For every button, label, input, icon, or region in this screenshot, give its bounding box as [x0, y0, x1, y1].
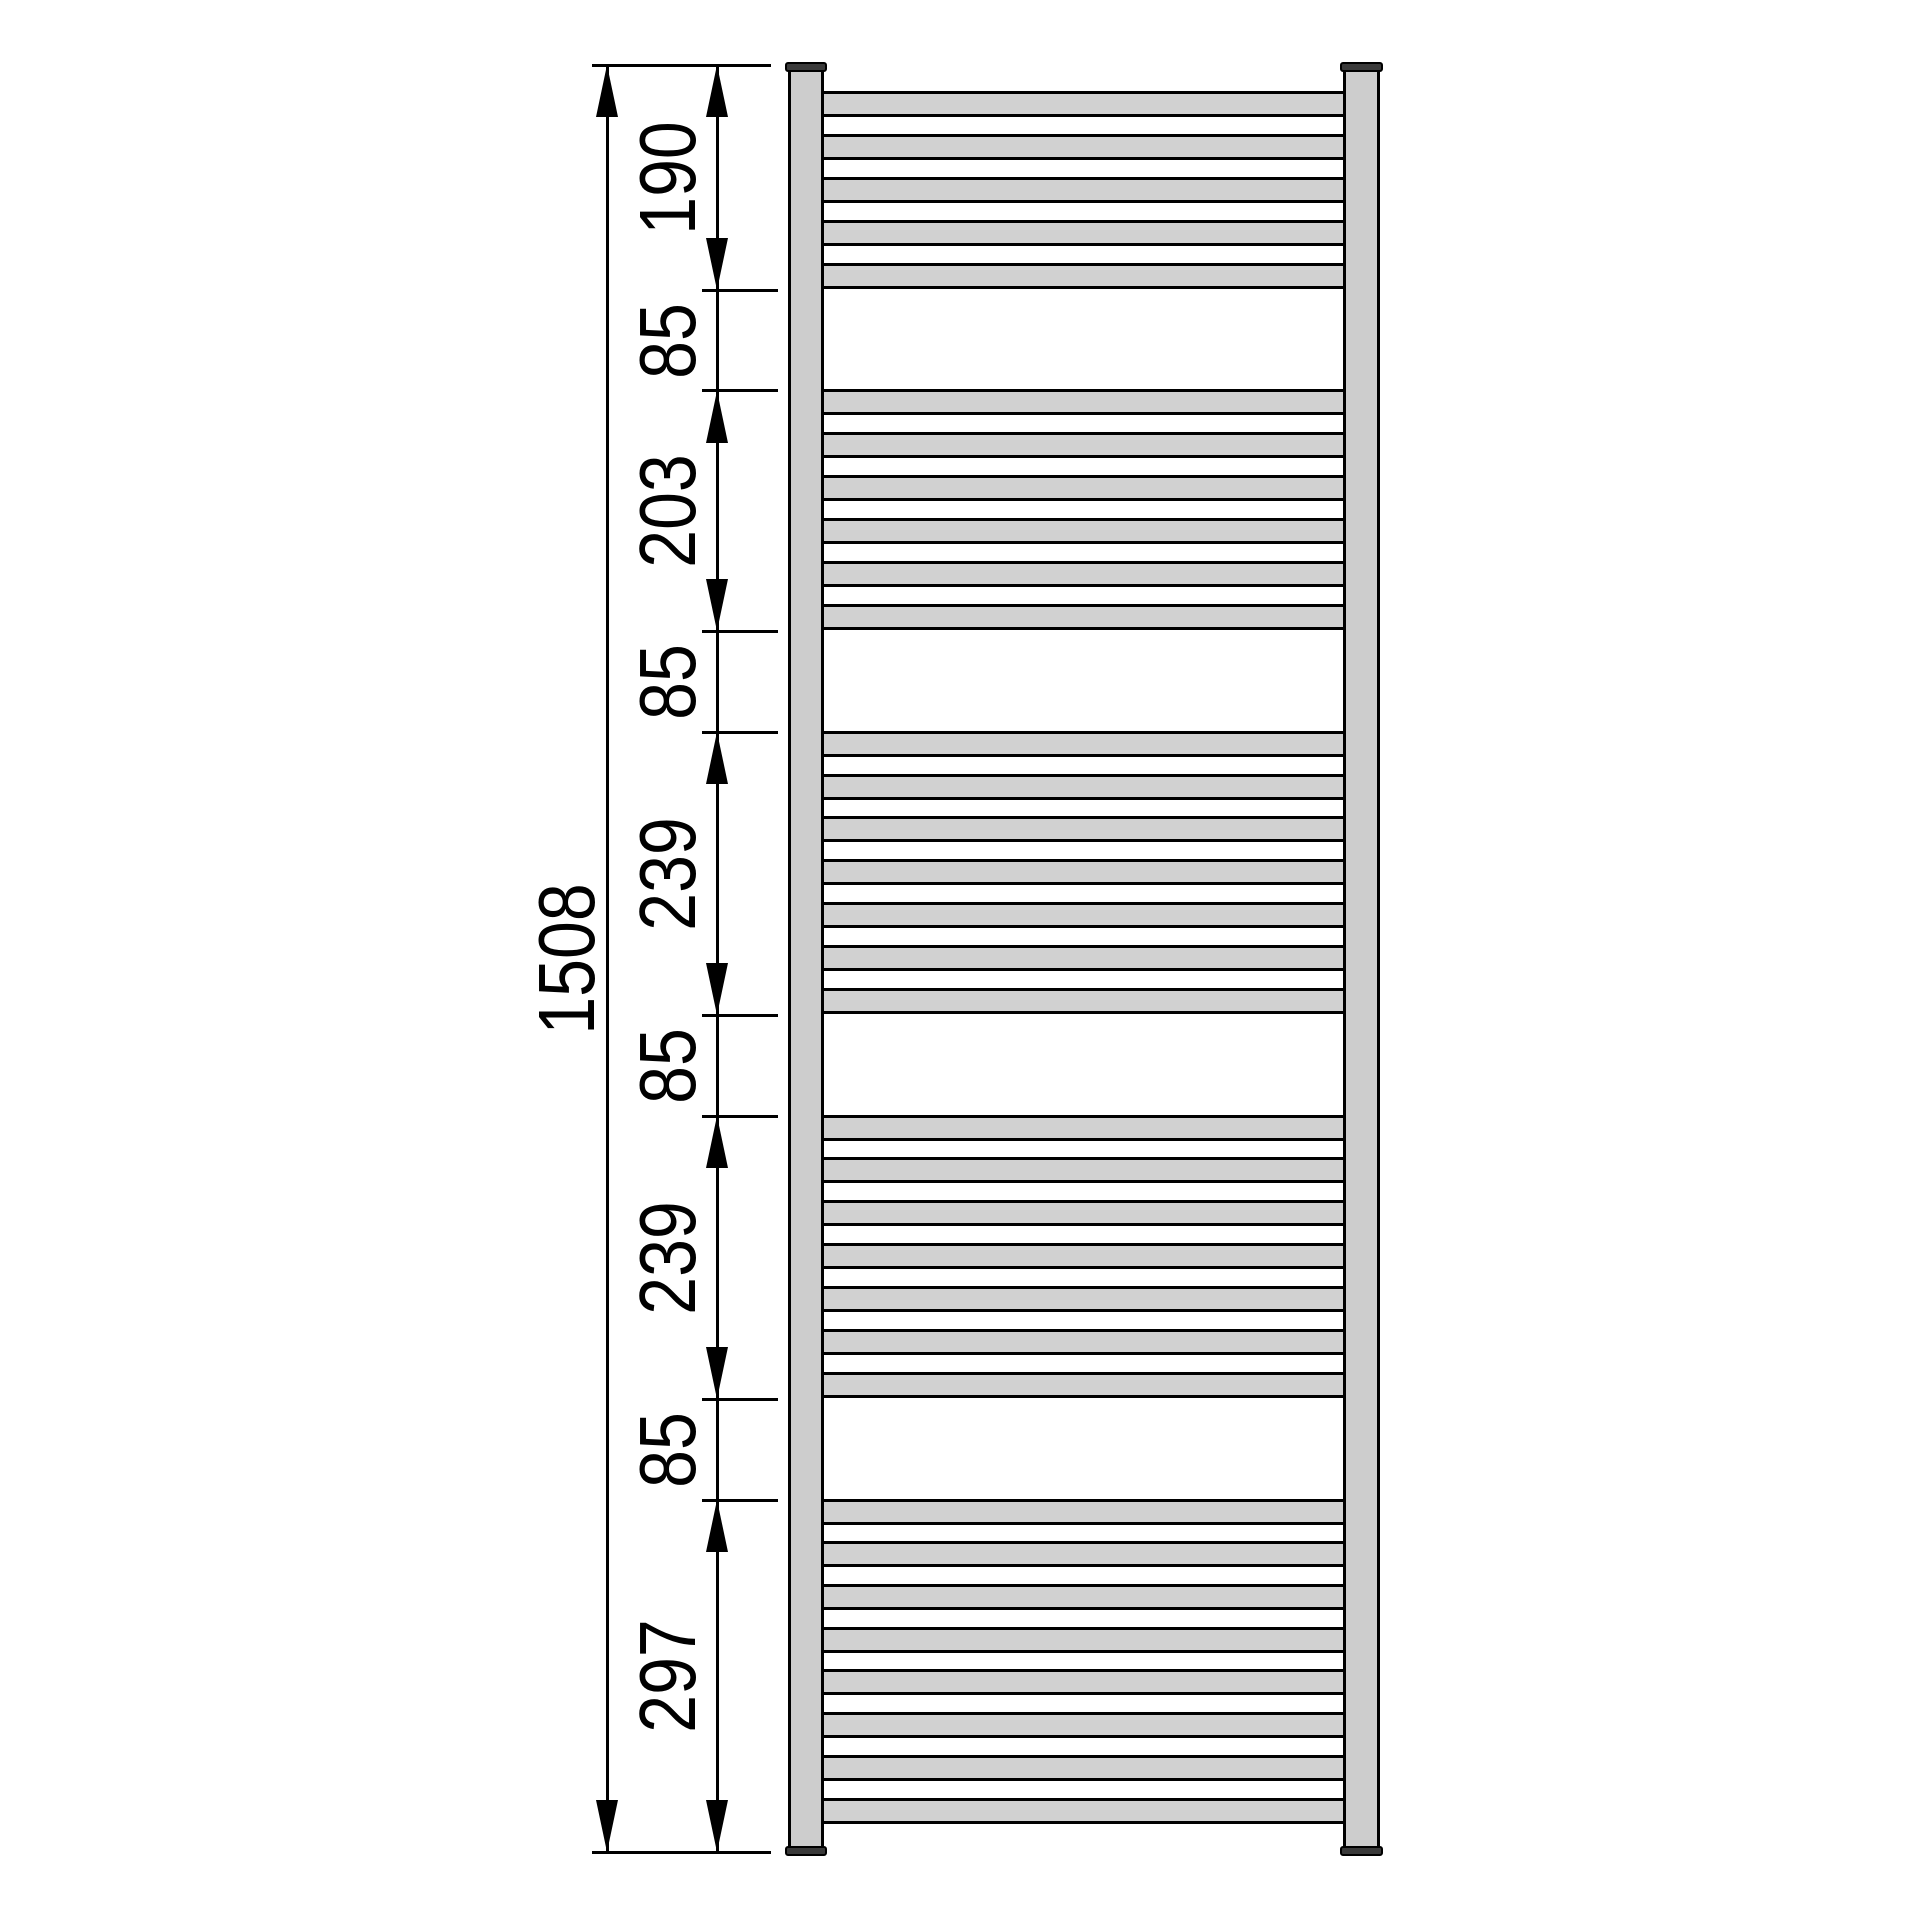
radiator-rung	[820, 475, 1347, 501]
radiator-rail-right	[1343, 65, 1380, 1852]
radiator-rung	[820, 1157, 1347, 1183]
radiator-rail-left	[788, 65, 824, 1852]
segment-dimension-line	[716, 64, 719, 1854]
radiator-rung	[820, 1200, 1347, 1226]
radiator-rung	[820, 1286, 1347, 1312]
radiator-rung	[820, 1115, 1347, 1141]
radiator-rung	[820, 1329, 1347, 1355]
radiator-rung	[820, 902, 1347, 928]
radiator-rung	[820, 389, 1347, 415]
radiator-rung	[820, 1712, 1347, 1738]
overall-dimension-arrow-top	[596, 65, 618, 117]
radiator-rung	[820, 1669, 1347, 1695]
radiator-rung	[820, 1755, 1347, 1781]
radiator-rung	[820, 988, 1347, 1014]
radiator-rung	[820, 263, 1347, 289]
technical-drawing: 150819085203852398523985297	[0, 0, 1920, 1920]
radiator-rung	[820, 134, 1347, 160]
overall-dimension-label: 1508	[522, 814, 612, 1103]
radiator-rung	[820, 1243, 1347, 1269]
radiator-rail-right-bottom-cap	[1340, 1846, 1383, 1856]
radiator-rung	[820, 859, 1347, 885]
radiator-rung	[820, 1627, 1347, 1653]
radiator-rung	[820, 91, 1347, 117]
radiator-rung	[820, 1798, 1347, 1824]
radiator-rung	[820, 1541, 1347, 1567]
radiator-rung	[820, 432, 1347, 458]
radiator-rung	[820, 220, 1347, 246]
radiator-rung	[820, 1499, 1347, 1525]
extension-tick-bottom	[592, 1851, 771, 1854]
radiator-rung	[820, 561, 1347, 587]
radiator-rung	[820, 1372, 1347, 1398]
radiator-rail-left-top-cap	[785, 62, 827, 72]
radiator-rail-left-bottom-cap	[785, 1846, 827, 1856]
radiator-rung	[820, 945, 1347, 971]
radiator-rung	[820, 1584, 1347, 1610]
radiator-rung	[820, 518, 1347, 544]
radiator-rung	[820, 604, 1347, 630]
radiator-rung	[820, 177, 1347, 203]
radiator-rung	[820, 816, 1347, 842]
radiator-rail-right-top-cap	[1340, 62, 1383, 72]
segment-dimension-label: 297	[623, 1532, 713, 1821]
overall-dimension-arrow-bottom	[596, 1800, 618, 1852]
radiator-rung	[820, 774, 1347, 800]
radiator-rung	[820, 731, 1347, 757]
